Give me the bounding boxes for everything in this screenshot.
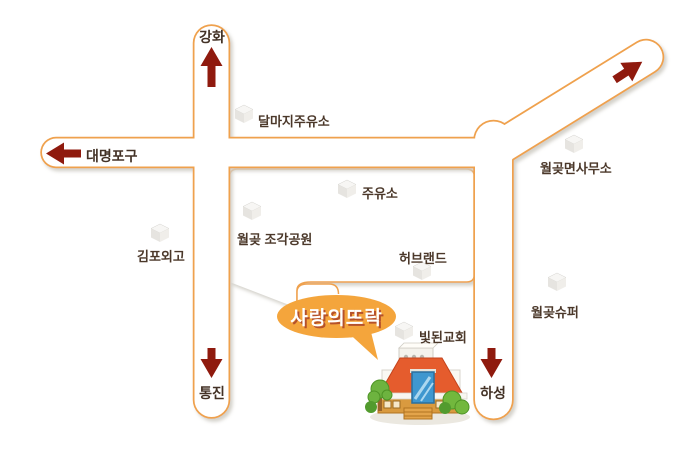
landmark-label: 주유소: [362, 183, 398, 202]
building-icon: [234, 104, 254, 124]
route-map: 강화 대명포구 통진 하성 달마지주유소 주유소 월곶 조각공원 허브랜드 월곶…: [0, 0, 674, 451]
building-icon: [394, 321, 414, 341]
landmark-label: 월곶슈퍼: [531, 302, 579, 321]
destination-label: 사랑의뜨락: [290, 303, 382, 330]
building-icon: [242, 201, 262, 221]
endpoint-label-tongjin: 통진: [194, 383, 230, 403]
landmark-label: 월곶 조각공원: [237, 229, 312, 248]
endpoint-label-haseong: 하성: [474, 383, 512, 403]
destination-bubble: 사랑의뜨락: [277, 295, 396, 338]
road-network: [0, 0, 674, 451]
building-icon: [564, 134, 584, 154]
landmark-label: 달마지주유소: [258, 111, 330, 130]
landmark-label: 허브랜드: [399, 248, 447, 267]
building-icon: [337, 179, 357, 199]
landmark-label: 월곶면사무소: [540, 158, 612, 177]
landmark-label: 빛된교회: [419, 327, 467, 346]
building-icon: [547, 272, 567, 292]
landmark-label: 김포외고: [137, 246, 185, 265]
endpoint-label-daemyeongpogu: 대명포구: [86, 146, 138, 166]
building-icon: [150, 223, 170, 243]
endpoint-label-ganghwa: 강화: [194, 27, 230, 47]
